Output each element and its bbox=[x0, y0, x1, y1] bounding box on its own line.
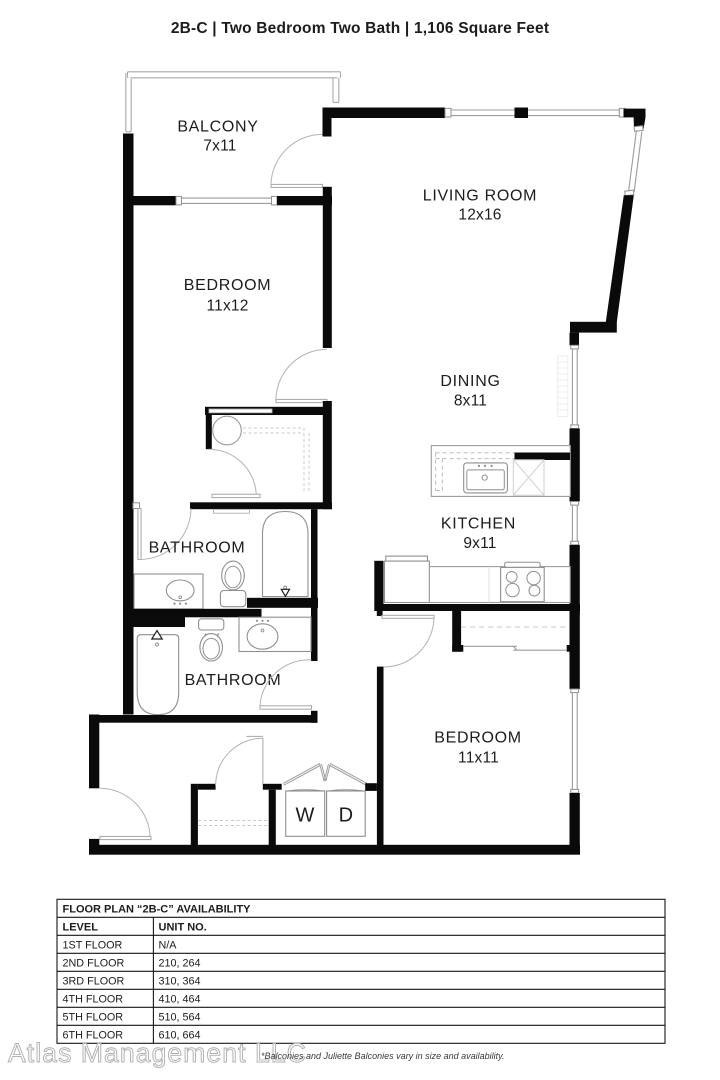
svg-text:FLOOR PLAN “2B-C” AVAILABILITY: FLOOR PLAN “2B-C” AVAILABILITY bbox=[63, 904, 252, 916]
svg-text:3RD FLOOR: 3RD FLOOR bbox=[63, 976, 125, 988]
svg-text:KITCHEN: KITCHEN bbox=[441, 516, 516, 533]
svg-text:11x12: 11x12 bbox=[206, 298, 248, 315]
svg-text:11x11: 11x11 bbox=[458, 750, 499, 767]
svg-text:4TH FLOOR: 4TH FLOOR bbox=[63, 994, 124, 1006]
svg-text:N/A: N/A bbox=[159, 940, 178, 952]
svg-text:BATHROOM: BATHROOM bbox=[149, 540, 246, 557]
svg-text:D: D bbox=[339, 805, 353, 827]
svg-text:5TH FLOOR: 5TH FLOOR bbox=[63, 1012, 124, 1024]
svg-text:LIVING ROOM: LIVING ROOM bbox=[423, 188, 537, 205]
svg-text:BATHROOM: BATHROOM bbox=[185, 672, 282, 689]
svg-text:7x11: 7x11 bbox=[203, 138, 236, 155]
svg-text:UNIT NO.: UNIT NO. bbox=[159, 922, 207, 934]
svg-text:210, 264: 210, 264 bbox=[159, 958, 201, 970]
svg-text:8x11: 8x11 bbox=[454, 393, 487, 410]
svg-text:DINING: DINING bbox=[440, 373, 500, 390]
svg-text:510, 564: 510, 564 bbox=[159, 1012, 201, 1024]
svg-text:BEDROOM: BEDROOM bbox=[184, 277, 272, 294]
svg-text:*Balconies and Juliette Balcon: *Balconies and Juliette Balconies vary i… bbox=[261, 1051, 504, 1061]
svg-text:BEDROOM: BEDROOM bbox=[434, 730, 522, 747]
svg-text:1ST FLOOR: 1ST FLOOR bbox=[63, 940, 123, 952]
svg-text:LEVEL: LEVEL bbox=[63, 922, 99, 934]
svg-text:310, 364: 310, 364 bbox=[159, 976, 201, 988]
svg-text:BALCONY: BALCONY bbox=[177, 119, 258, 136]
svg-text:2B-C | Two Bedroom Two Bath |: 2B-C | Two Bedroom Two Bath | 1,106 Squa… bbox=[171, 20, 549, 37]
svg-text:12x16: 12x16 bbox=[458, 207, 501, 224]
svg-text:W: W bbox=[296, 805, 315, 827]
svg-text:410, 464: 410, 464 bbox=[159, 994, 201, 1006]
svg-text:9x11: 9x11 bbox=[463, 535, 496, 552]
svg-text:2ND FLOOR: 2ND FLOOR bbox=[63, 958, 125, 970]
